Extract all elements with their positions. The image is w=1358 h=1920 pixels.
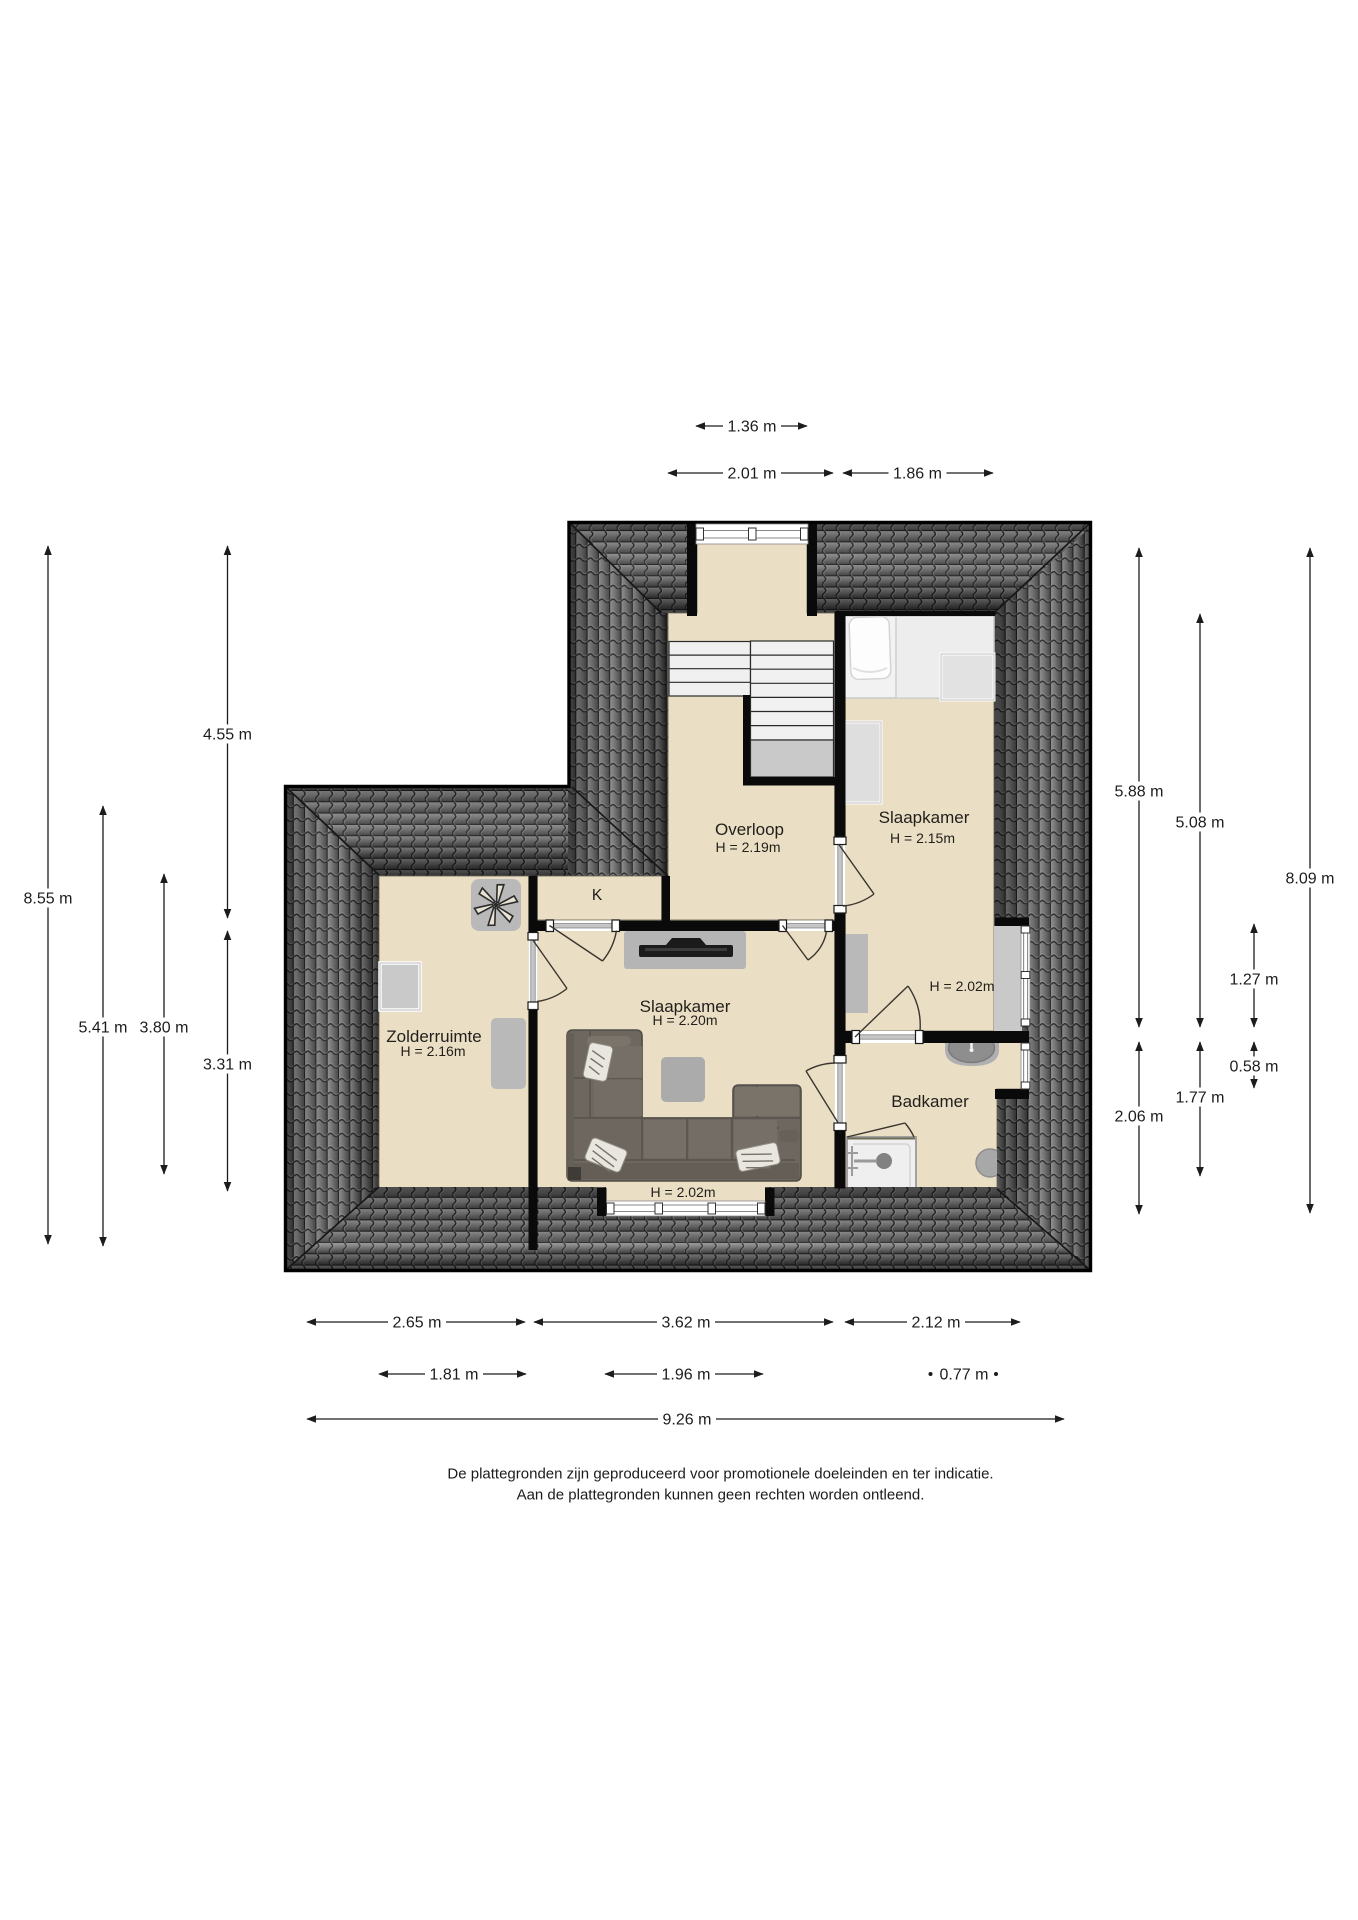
svg-text:2.65 m: 2.65 m (393, 1315, 442, 1332)
svg-text:3.31 m: 3.31 m (203, 1057, 252, 1074)
svg-text:H = 2.15m: H = 2.15m (890, 830, 955, 846)
svg-text:K: K (592, 887, 603, 904)
svg-text:1.77 m: 1.77 m (1176, 1090, 1225, 1107)
svg-text:4.55 m: 4.55 m (203, 727, 252, 744)
svg-text:Overloop: Overloop (715, 820, 784, 839)
svg-text:1.27 m: 1.27 m (1230, 972, 1279, 989)
svg-text:1.86 m: 1.86 m (893, 466, 942, 483)
svg-text:H = 2.02m: H = 2.02m (930, 978, 995, 994)
svg-text:9.26 m: 9.26 m (663, 1412, 712, 1429)
svg-text:0.58 m: 0.58 m (1230, 1059, 1279, 1076)
svg-text:1.96 m: 1.96 m (662, 1367, 711, 1384)
svg-text:8.09 m: 8.09 m (1286, 871, 1335, 888)
svg-text:H = 2.16m: H = 2.16m (401, 1043, 466, 1059)
svg-text:5.08 m: 5.08 m (1176, 815, 1225, 832)
svg-text:De plattegronden zijn geproduc: De plattegronden zijn geproduceerd voor … (447, 1466, 993, 1483)
svg-text:5.88 m: 5.88 m (1115, 784, 1164, 801)
svg-text:0.77 m: 0.77 m (940, 1367, 989, 1384)
svg-text:1.36 m: 1.36 m (728, 419, 777, 436)
svg-text:2.01 m: 2.01 m (728, 466, 777, 483)
svg-text:2.06 m: 2.06 m (1115, 1109, 1164, 1126)
svg-text:Slaapkamer: Slaapkamer (879, 808, 970, 827)
svg-text:3.62 m: 3.62 m (662, 1315, 711, 1332)
svg-text:Badkamer: Badkamer (891, 1092, 969, 1111)
svg-text:Aan de plattegronden kunnen ge: Aan de plattegronden kunnen geen rechten… (517, 1487, 925, 1504)
svg-text:5.41 m: 5.41 m (79, 1020, 128, 1037)
svg-text:H = 2.19m: H = 2.19m (716, 839, 781, 855)
svg-text:2.12 m: 2.12 m (912, 1315, 961, 1332)
svg-text:H = 2.02m: H = 2.02m (651, 1184, 716, 1200)
svg-text:H = 2.20m: H = 2.20m (653, 1012, 718, 1028)
svg-text:1.81 m: 1.81 m (430, 1367, 479, 1384)
svg-text:8.55 m: 8.55 m (24, 891, 73, 908)
svg-text:3.80 m: 3.80 m (140, 1020, 189, 1037)
